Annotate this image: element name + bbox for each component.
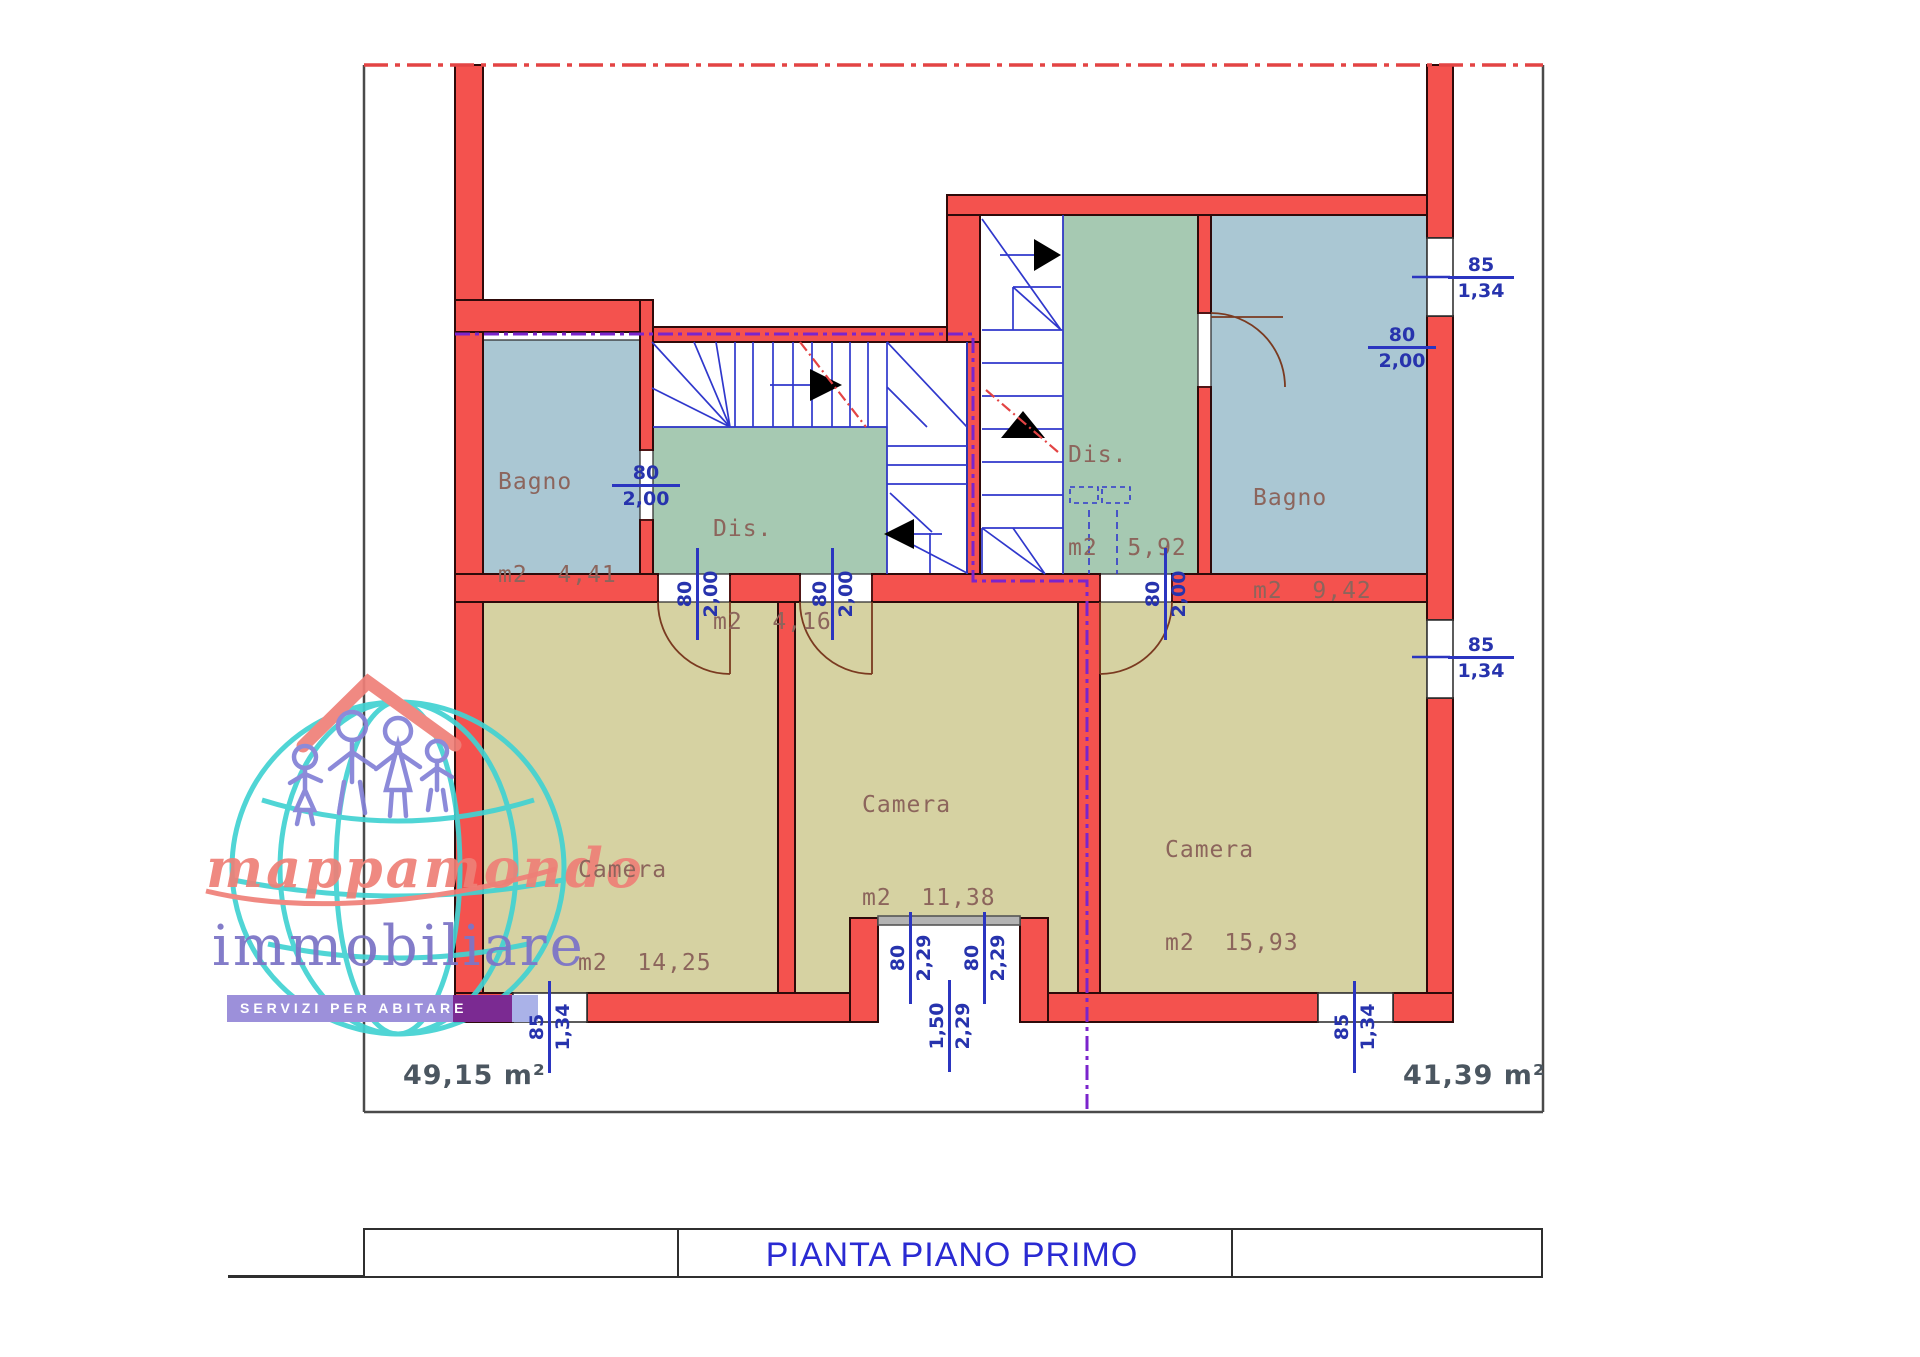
- dim-width: 80: [887, 912, 912, 1004]
- dim-camera-left-door: 80 2,00: [674, 548, 722, 640]
- dim-width: 1,50: [926, 980, 951, 1072]
- dim-width: 85: [1448, 254, 1514, 279]
- dim-height: 2,00: [699, 548, 722, 640]
- dim-width: 85: [1448, 634, 1514, 659]
- room-area: m2 11,38: [862, 883, 996, 914]
- dim-camera-right-door: 80 2,00: [1142, 548, 1190, 640]
- room-name: Bagno: [1253, 483, 1372, 514]
- dim-height: 2,00: [1368, 349, 1436, 372]
- dim-height: 2,29: [986, 912, 1009, 1004]
- room-name: Bagno: [498, 467, 617, 498]
- dim-width: 80: [809, 548, 834, 640]
- dim-width: 80: [1142, 548, 1167, 640]
- dim-camera-mid-door: 80 2,00: [809, 548, 857, 640]
- dim-height: 2,29: [951, 980, 974, 1072]
- room-label-bagno-left: Bagno m2 4,41: [498, 405, 617, 653]
- dim-height: 2,00: [612, 487, 680, 510]
- dim-height: 1,34: [1448, 279, 1514, 302]
- room-area: m2 15,93: [1165, 928, 1299, 959]
- dim-bagno-right-door: 80 2,00: [1368, 324, 1436, 372]
- dim-height: 2,00: [1167, 548, 1190, 640]
- room-name: Dis.: [1068, 440, 1187, 471]
- dim-window-bottom-right: 85 1,34: [1331, 981, 1379, 1073]
- dim-bagno-left-door: 80 2,00: [612, 462, 680, 510]
- floor-plan-page: mappamondo immobiliare SERVIZI PER ABITA…: [0, 0, 1920, 1357]
- title-block-divider-right: [1231, 1230, 1233, 1276]
- dim-width: 80: [1368, 324, 1436, 349]
- room-area: m2 9,42: [1253, 576, 1372, 607]
- room-label-camera-left: Camera m2 14,25: [578, 793, 712, 1041]
- room-name: Camera: [1165, 835, 1299, 866]
- title-block-extension-line: [228, 1275, 365, 1278]
- logo-banner-text: SERVIZI PER ABITARE: [240, 995, 500, 1022]
- dim-height: 1,34: [551, 981, 574, 1073]
- logo-brand-word: immobiliare: [212, 914, 586, 979]
- room-area: m2 14,25: [578, 948, 712, 979]
- drawing-title: PIANTA PIANO PRIMO: [675, 1236, 1229, 1275]
- dim-window-right-top: 85 1,34: [1448, 254, 1514, 302]
- dim-width: 85: [1331, 981, 1356, 1073]
- dim-width: 80: [674, 548, 699, 640]
- dim-height: 1,34: [1356, 981, 1379, 1073]
- room-name: Camera: [862, 790, 996, 821]
- dim-height: 2,00: [834, 548, 857, 640]
- dim-height: 1,34: [1448, 659, 1514, 682]
- dim-width: 80: [612, 462, 680, 487]
- room-label-bagno-right: Bagno m2 9,42: [1253, 421, 1372, 669]
- room-label-camera-right: Camera m2 15,93: [1165, 773, 1299, 1021]
- room-name: Camera: [578, 855, 712, 886]
- unit-area-right: 41,39 m²: [1403, 1060, 1546, 1091]
- unit-area-left: 49,15 m²: [403, 1060, 546, 1091]
- dim-window-right-bottom: 85 1,34: [1448, 634, 1514, 682]
- room-area: m2 4,41: [498, 560, 617, 591]
- room-name: Dis.: [713, 514, 832, 545]
- dim-recess-center: 1,50 2,29: [926, 980, 974, 1072]
- agency-logo: [0, 0, 1920, 1357]
